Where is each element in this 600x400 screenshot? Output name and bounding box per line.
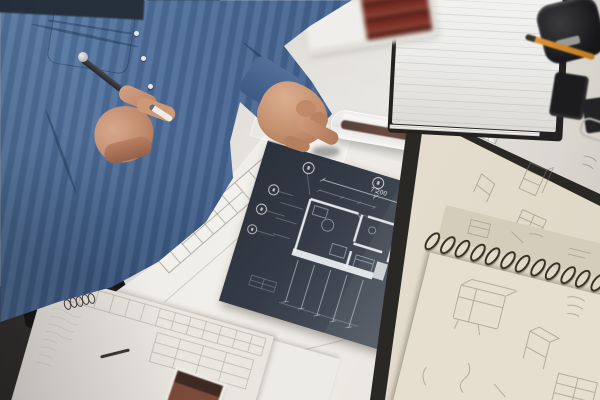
photo-architect-desk: Overhead photo of an architect in a blue… (0, 0, 600, 400)
red-material-samples (360, 0, 433, 41)
shirt-button (141, 56, 146, 61)
mechanical-pencil-cap (78, 52, 88, 62)
shirt-button (134, 31, 139, 36)
finger-contact-shadow (312, 146, 340, 157)
shirt-button (148, 84, 153, 89)
